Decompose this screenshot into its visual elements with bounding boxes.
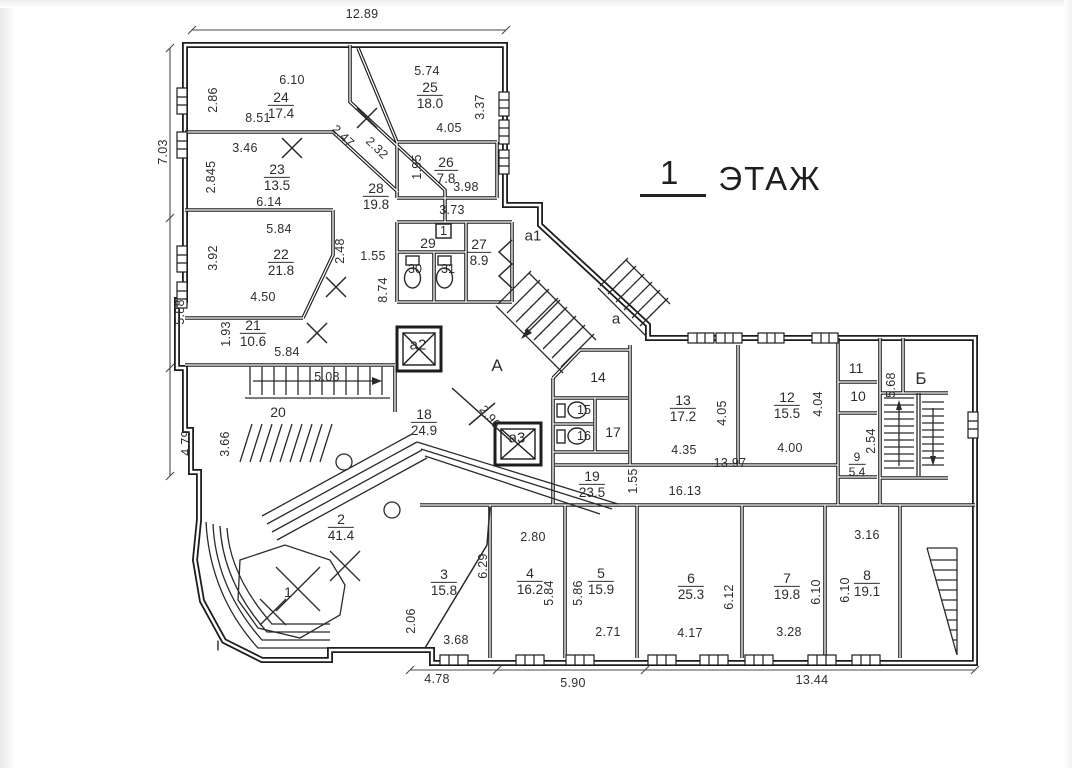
room-area: 19.8 bbox=[774, 587, 800, 603]
dim-label: 5.90 bbox=[560, 676, 586, 690]
room-number: 7 bbox=[774, 571, 800, 587]
room-number: 26 bbox=[434, 155, 458, 171]
room-number: 8 bbox=[854, 568, 880, 584]
room-number: 4 bbox=[517, 566, 543, 582]
room-number: 9 bbox=[849, 451, 866, 465]
room-label-8: 819.1 bbox=[854, 568, 880, 600]
room-area: 15.8 bbox=[431, 583, 457, 599]
dim-label: 3.92 bbox=[206, 245, 220, 271]
room-label-2: 241.4 bbox=[328, 512, 354, 544]
room-label-21: 2110.6 bbox=[240, 318, 266, 350]
dim-label: 6.10 bbox=[279, 73, 305, 87]
room-label-14: 14 bbox=[590, 369, 606, 385]
stair-b bbox=[884, 393, 944, 476]
room-number: 12 bbox=[774, 390, 800, 406]
dim-label: 5.84 bbox=[266, 222, 292, 236]
floorplan-page: 2417.4 2518.0 2313.5 267.8 2819.8 278.9 … bbox=[0, 0, 1072, 768]
room-number: 27 bbox=[467, 237, 491, 253]
room-area: 13.5 bbox=[264, 178, 290, 194]
dim-label: 1.95 bbox=[410, 154, 424, 180]
zone-label-a3: а3 bbox=[509, 430, 526, 447]
dim-label: 3.28 bbox=[776, 625, 802, 639]
room-number: 6 bbox=[678, 571, 704, 587]
dim-label: 4.04 bbox=[811, 391, 825, 417]
room-area: 15.9 bbox=[588, 582, 614, 598]
room-area: 15.5 bbox=[774, 406, 800, 422]
dim-label: 2.845 bbox=[204, 161, 218, 194]
room-label-3: 315.8 bbox=[431, 567, 457, 599]
room-label-19: 1923.5 bbox=[579, 469, 605, 501]
room-label-17: 17 bbox=[605, 424, 621, 440]
floor-word: ЭТАЖ bbox=[718, 162, 821, 197]
dim-label: 2.80 bbox=[520, 530, 546, 544]
dim-label: 2.06 bbox=[404, 608, 418, 634]
room-number: 2 bbox=[328, 512, 354, 528]
dim-label: 2.86 bbox=[206, 87, 220, 113]
room-area: 18.0 bbox=[417, 96, 443, 112]
room-area: 8.9 bbox=[467, 253, 491, 269]
dim-label: 3.66 bbox=[218, 431, 232, 457]
room-label-16: 16 bbox=[577, 429, 591, 443]
room-label-4: 416.2 bbox=[517, 566, 543, 598]
dim-label: 2.71 bbox=[595, 625, 621, 639]
dim-label: 5.84 bbox=[274, 345, 300, 359]
room-area: 19.1 bbox=[854, 584, 880, 600]
scan-edge-top bbox=[0, 0, 1072, 8]
room-label-6: 625.3 bbox=[678, 571, 704, 603]
room-label-7: 719.8 bbox=[774, 571, 800, 603]
dim-label: 5.68 bbox=[884, 372, 898, 398]
dim-label: 3.46 bbox=[232, 141, 258, 155]
room-area: 41.4 bbox=[328, 528, 354, 544]
dim-label: 12.89 bbox=[346, 7, 379, 21]
dim-label: 3.68 bbox=[443, 633, 469, 647]
room-label-28: 2819.8 bbox=[363, 181, 389, 213]
floorplan-drawing bbox=[0, 0, 1072, 768]
scan-edge-left bbox=[0, 0, 16, 768]
zone-label-A: А bbox=[491, 356, 502, 376]
floor-number: 1 bbox=[640, 156, 706, 197]
room-label-22: 2221.8 bbox=[268, 247, 294, 279]
room-number: 13 bbox=[670, 393, 696, 409]
dim-label: 6.12 bbox=[722, 584, 736, 610]
dim-label: 5.86 bbox=[571, 580, 585, 606]
dim-label: 5.84 bbox=[542, 580, 556, 606]
room-area: 19.8 bbox=[363, 197, 389, 213]
dim-label: 6.14 bbox=[256, 195, 282, 209]
room-label-12: 1215.5 bbox=[774, 390, 800, 422]
scan-edge-right bbox=[1064, 0, 1072, 768]
interior-walls bbox=[185, 45, 975, 658]
dim-label: 3.37 bbox=[473, 94, 487, 120]
dim-label: 2.54 bbox=[864, 428, 878, 454]
stair-a-lower bbox=[598, 258, 670, 336]
room-label-27: 278.9 bbox=[467, 237, 491, 269]
room-label-31: 31 bbox=[441, 262, 455, 276]
room-number: 23 bbox=[264, 162, 290, 178]
tag-label-1: 1 bbox=[440, 224, 447, 238]
room-number: 24 bbox=[268, 90, 294, 106]
room-label-29: 29 bbox=[420, 235, 436, 251]
dim-label: 5.88 bbox=[173, 299, 187, 325]
stair-right-edge bbox=[927, 548, 957, 655]
room-area: 17.4 bbox=[268, 106, 294, 122]
room-area: 21.8 bbox=[268, 263, 294, 279]
dim-label: 4.17 bbox=[677, 626, 703, 640]
room-number: 3 bbox=[431, 567, 457, 583]
dim-label: 6.29 bbox=[476, 553, 490, 579]
dim-label: 1.55 bbox=[626, 468, 640, 494]
room-area: 5.4 bbox=[849, 465, 866, 479]
room-label-11: 11 bbox=[849, 360, 864, 376]
room-number: 28 bbox=[363, 181, 389, 197]
room-label-24: 2417.4 bbox=[268, 90, 294, 122]
room-number: 5 bbox=[588, 566, 614, 582]
dim-label: 1.55 bbox=[360, 249, 386, 263]
room-number: 22 bbox=[268, 247, 294, 263]
dim-label: 4.05 bbox=[436, 121, 462, 135]
dim-label: 7.03 bbox=[156, 139, 170, 165]
room-label-1: 1 bbox=[284, 584, 292, 600]
room-area: 10.6 bbox=[240, 334, 266, 350]
dim-label: 6.10 bbox=[809, 579, 823, 605]
room-label-25: 2518.0 bbox=[417, 80, 443, 112]
dim-label: 4.79 bbox=[179, 430, 193, 456]
room-label-10: 10 bbox=[850, 388, 866, 404]
dim-label: 4.05 bbox=[715, 400, 729, 426]
dim-label: 13.44 bbox=[796, 673, 829, 687]
dim-label: 4.78 bbox=[424, 672, 450, 686]
zone-label-a1: а1 bbox=[525, 228, 542, 245]
dim-label: 4.50 bbox=[250, 290, 276, 304]
dim-label: 3.98 bbox=[453, 180, 479, 194]
room-area: 25.3 bbox=[678, 587, 704, 603]
room-number: 25 bbox=[417, 80, 443, 96]
room-number: 19 bbox=[579, 469, 605, 485]
dim-label: 2.48 bbox=[333, 238, 347, 264]
room-label-13: 1317.2 bbox=[670, 393, 696, 425]
room-area: 24.9 bbox=[411, 423, 437, 439]
room-label-20: 20 bbox=[270, 404, 286, 420]
room-area: 16.2 bbox=[517, 582, 543, 598]
dim-label: 8.51 bbox=[245, 111, 271, 125]
zone-label-b: Б bbox=[915, 369, 926, 389]
room-label-15: 15 bbox=[577, 403, 591, 417]
dim-label: 13.97 bbox=[714, 456, 747, 470]
dim-label: 6.10 bbox=[838, 577, 852, 603]
room-number: 21 bbox=[240, 318, 266, 334]
zone-label-a: а bbox=[612, 311, 620, 328]
room-label-9: 95.4 bbox=[849, 451, 866, 479]
dim-label: 5.74 bbox=[414, 64, 440, 78]
room-number: 18 bbox=[411, 407, 437, 423]
room-label-5: 515.9 bbox=[588, 566, 614, 598]
room-area: 23.5 bbox=[579, 485, 605, 501]
room-label-23: 2313.5 bbox=[264, 162, 290, 194]
dim-label: 8.74 bbox=[376, 277, 390, 303]
dim-label: 3.16 bbox=[854, 528, 880, 542]
dim-label: 4.35 bbox=[671, 443, 697, 457]
room-label-30: 30 bbox=[408, 262, 422, 276]
dim-label: 1.93 bbox=[219, 321, 233, 347]
zone-label-entrance: I bbox=[216, 638, 220, 655]
dim-label: 4.00 bbox=[777, 441, 803, 455]
dim-label: 3.73 bbox=[439, 203, 465, 217]
zone-label-a2: а2 bbox=[410, 337, 427, 354]
room-area: 17.2 bbox=[670, 409, 696, 425]
floor-title: 1 ЭТАЖ bbox=[640, 156, 822, 197]
dim-label: 16.13 bbox=[669, 484, 702, 498]
dim-label: 5.08 bbox=[314, 370, 340, 384]
room-label-18: 1824.9 bbox=[411, 407, 437, 439]
